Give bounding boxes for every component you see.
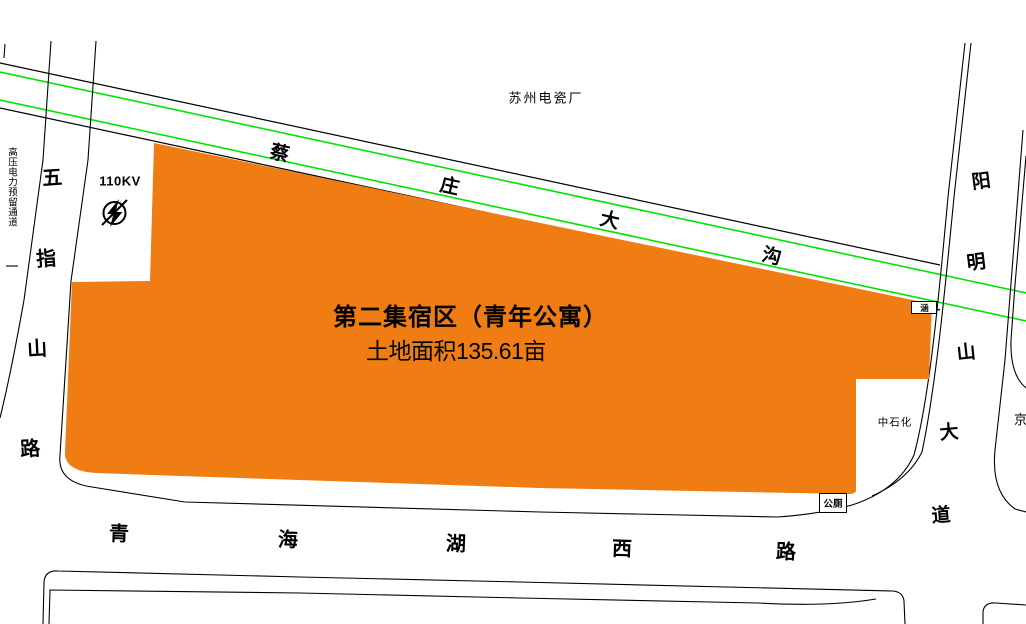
qinghaihu-road-char: 路 — [776, 535, 797, 565]
sinopec-label: 中石化 — [878, 415, 913, 430]
wuzhishan-road-char: 五 — [41, 161, 63, 191]
culvert-marker-box: 涵 — [911, 301, 937, 314]
qinghaihu-road-char: 湖 — [446, 527, 467, 557]
factory-label: 苏州电瓷厂 — [508, 88, 583, 107]
wuzhishan-road-char: 山 — [26, 332, 47, 362]
wuzhishan-road-char: 指 — [35, 242, 57, 272]
power-voltage-label: 110KV — [99, 174, 141, 189]
southeast-block-boundary — [983, 603, 1026, 624]
parcel-area-label: 土地面积135.61亩 — [366, 332, 546, 366]
yangmingshan-avenue-char: 明 — [965, 246, 987, 275]
yangmingshan-right-edge — [994, 130, 1026, 512]
power-line-icon — [102, 199, 127, 227]
yangmingshan-avenue-char: 山 — [955, 337, 977, 366]
parcel-title: 第二集宿区（青年公寓） — [333, 297, 608, 332]
site-plan-map: 苏州电瓷厂 高压电力预留通道 110KV 第二集宿区（青年公寓） 土地面积135… — [0, 0, 1026, 624]
qinghaihu-road-char: 青 — [109, 517, 130, 547]
public-toilet-box: 公厕 — [819, 493, 847, 513]
yangmingshan-avenue-char: 道 — [931, 500, 952, 528]
south-block-inner-boundary — [49, 590, 876, 624]
qinghaihu-road-char: 西 — [612, 532, 633, 562]
yangmingshan-avenue-char: 阳 — [970, 165, 992, 194]
wuzhishan-road-char: 路 — [19, 432, 40, 462]
yangmingshan-avenue-char: 大 — [938, 417, 959, 446]
boundary-tick — [4, 44, 5, 58]
power-corridor-label: 高压电力预留通道 — [6, 147, 16, 239]
qinghaihu-road-char: 海 — [278, 523, 299, 553]
edge-partial-label: 京 — [1014, 409, 1026, 428]
